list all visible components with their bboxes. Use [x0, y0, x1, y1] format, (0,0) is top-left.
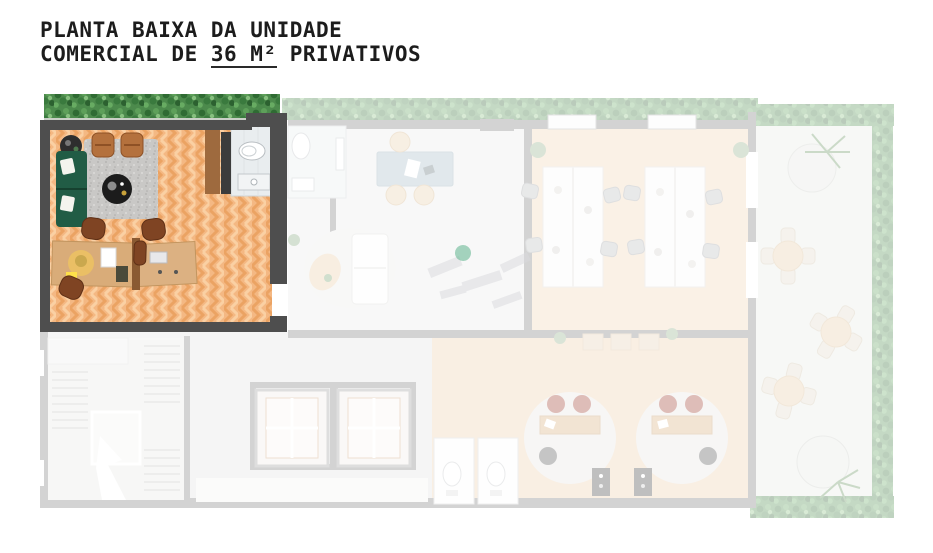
title-line-1: PLANTA BAIXA DA UNIDADE — [40, 18, 421, 42]
laptop — [150, 252, 167, 263]
unit-hedge — [44, 94, 280, 121]
bench-desk — [645, 167, 705, 287]
title-line-2: COMERCIAL DE 36 M² PRIVATIVOS — [40, 42, 421, 66]
floorplan-drawing — [0, 0, 933, 553]
wall-planter-box — [648, 115, 696, 129]
wall-planter-box — [548, 115, 596, 129]
unit-bathroom — [205, 124, 271, 196]
paper — [101, 248, 116, 267]
title-line-2-suffix: PRIVATIVOS — [277, 42, 422, 66]
terrace-window-gap — [746, 242, 758, 298]
terrace-bottom-hedge — [750, 496, 894, 518]
office-plant — [530, 142, 546, 158]
sofa — [56, 151, 87, 227]
bench-desk — [543, 167, 603, 287]
highlighted-unit-36m2 — [40, 94, 287, 332]
side-table-plant — [74, 147, 79, 152]
sliding-door — [221, 132, 231, 194]
sofa-pillow — [60, 195, 75, 212]
office-plant — [733, 142, 749, 158]
window-sill — [38, 350, 44, 376]
corridor — [196, 478, 428, 502]
toilet — [239, 142, 265, 160]
window-sill — [38, 460, 44, 486]
terrace-window-gap — [746, 152, 758, 208]
page-title: PLANTA BAIXA DA UNIDADE COMERCIAL DE 36 … — [40, 18, 421, 66]
neighbour-bathroom — [288, 126, 346, 198]
title-line-2-prefix: COMERCIAL DE — [40, 42, 211, 66]
staircase — [48, 338, 184, 500]
floorplan-page: PLANTA BAIXA DA UNIDADE COMERCIAL DE 36 … — [0, 0, 933, 553]
coffee-table — [102, 174, 132, 204]
terrace-right-hedge — [872, 112, 893, 518]
side-table-item — [65, 140, 71, 146]
wardrobe-cabinet — [205, 128, 220, 194]
desk-item — [116, 266, 128, 282]
desk-lamp — [75, 255, 87, 267]
unit-area-value: 36 M² — [211, 42, 277, 68]
